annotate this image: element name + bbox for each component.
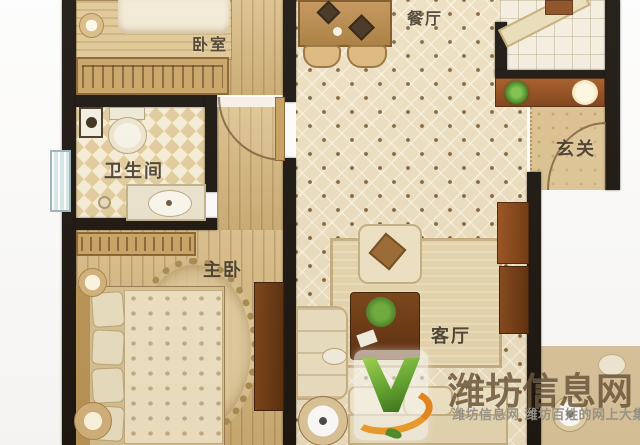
wall-bathroom-top xyxy=(76,95,207,107)
wall-middle-bottom xyxy=(283,158,296,445)
side-table-small xyxy=(322,348,347,365)
nightstand-lamp-master xyxy=(74,402,112,440)
room-label-living: 客厅 xyxy=(431,322,471,348)
washing-machine xyxy=(79,107,103,138)
dining-chair xyxy=(347,45,387,68)
watermark-tagline-text: 潍坊信息网 潍坊百姓的网上大集 xyxy=(452,404,640,423)
plant-icon xyxy=(505,81,528,104)
napkin-icon xyxy=(333,27,342,36)
floor-drain-icon xyxy=(98,196,111,209)
floorplan-image: 卧室 餐厅 玄关 卫生间 主卧 客厅 潍坊信息网 潍坊信息网 潍坊百姓的网上大集 xyxy=(0,0,640,445)
wall-left-outer xyxy=(62,0,76,445)
pillow xyxy=(91,329,125,366)
door-leaf-hallway xyxy=(275,97,285,161)
wardrobe-bedroom xyxy=(76,57,229,95)
wall-bathroom-right xyxy=(205,95,217,192)
plant-icon xyxy=(366,297,396,327)
room-label-entry: 玄关 xyxy=(556,135,596,161)
room-label-dining: 餐厅 xyxy=(407,5,443,29)
dining-table xyxy=(298,0,392,47)
lamp-entry xyxy=(572,80,598,105)
bed-bedroom-duvet xyxy=(118,0,230,34)
tv-unit-living xyxy=(497,202,529,264)
bed-master-duvet xyxy=(124,290,223,444)
toilet xyxy=(108,117,147,154)
tv-unit-living xyxy=(499,266,529,334)
dining-chair xyxy=(303,45,341,68)
nightstand-bedroom xyxy=(79,13,104,38)
room-label-bathroom: 卫生间 xyxy=(104,157,164,183)
bathroom-window xyxy=(50,150,71,212)
pillow xyxy=(91,367,125,404)
room-label-bedroom: 卧室 xyxy=(192,31,228,55)
tv-cabinet-master xyxy=(254,282,284,411)
kitchen-cabinet xyxy=(545,0,573,15)
nightstand-lamp-master xyxy=(78,268,107,297)
wall-right-outer-top xyxy=(605,0,620,190)
wall-kitchen-bottom xyxy=(495,70,607,78)
wall-middle-top xyxy=(283,0,296,102)
wardrobe-master xyxy=(76,232,196,256)
room-label-master-bedroom: 主卧 xyxy=(203,256,243,282)
faucet-icon xyxy=(166,200,172,206)
side-table-lamp xyxy=(298,396,348,445)
